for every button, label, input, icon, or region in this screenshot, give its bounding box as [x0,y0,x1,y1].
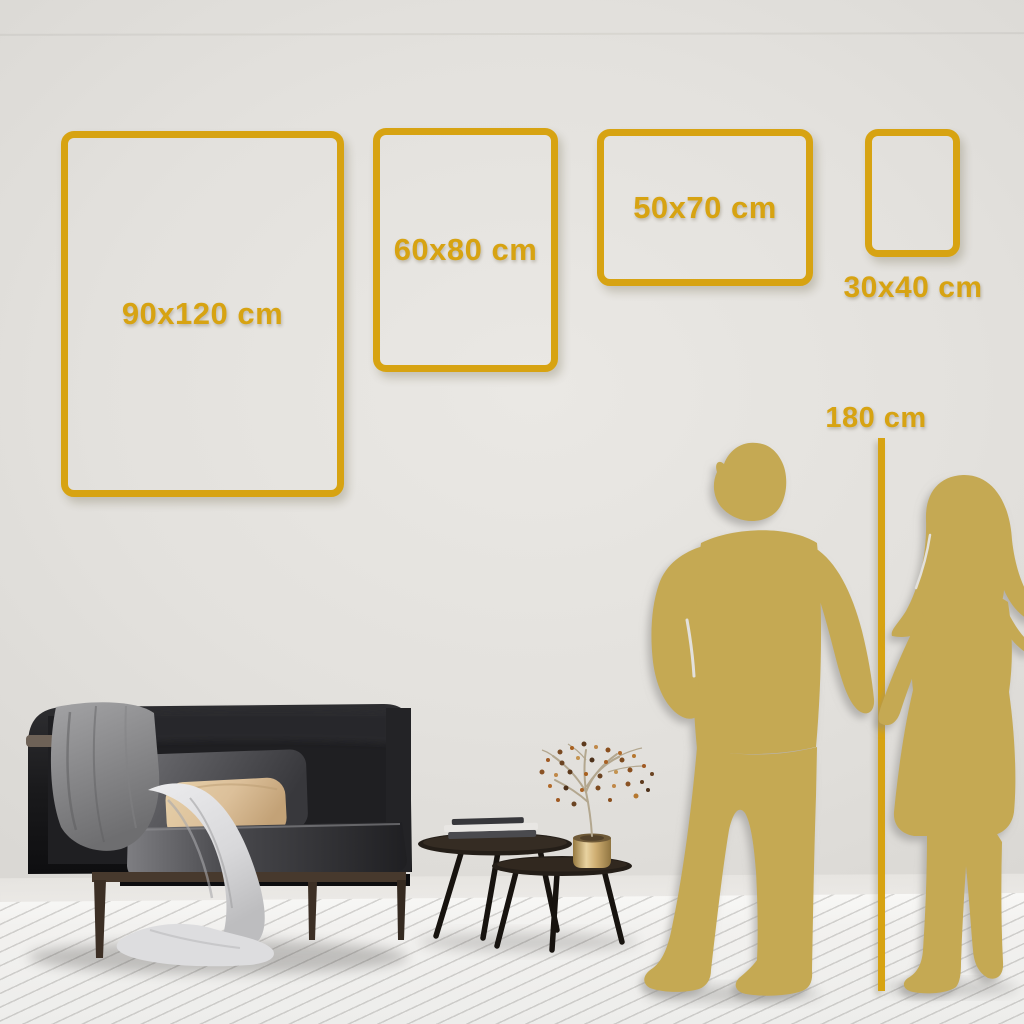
frame-label-90x120: 90x120 cm [122,296,283,332]
size-guide-scene: 90x120 cm 60x80 cm 50x70 cm 30x40 cm 180… [0,0,1024,1024]
height-marker-line [878,438,885,991]
frame-60x80: 60x80 cm [373,128,558,372]
frame-90x120: 90x120 cm [61,131,344,497]
ceiling-line [0,32,1024,36]
vase [573,834,611,869]
sofa-seat-cushion [127,822,407,878]
frame-30x40 [865,129,960,257]
coffee-table-top [418,833,572,856]
frame-50x70: 50x70 cm [597,129,813,286]
frame-label-30x40: 30x40 cm [813,271,1013,305]
books [444,817,538,839]
sofa-back-cushion [131,749,309,835]
floor [0,884,1024,1024]
frame-label-50x70: 50x70 cm [633,190,777,226]
frame-label-60x80: 60x80 cm [394,232,538,268]
coffee-table-top [492,856,632,876]
sofa-arm-rail [26,735,120,747]
berries [540,742,655,807]
sofa-beige-pillow [165,777,288,841]
sofa-blanket [51,702,159,851]
branch-arrangement [540,742,655,837]
height-marker-label: 180 cm [776,402,976,435]
